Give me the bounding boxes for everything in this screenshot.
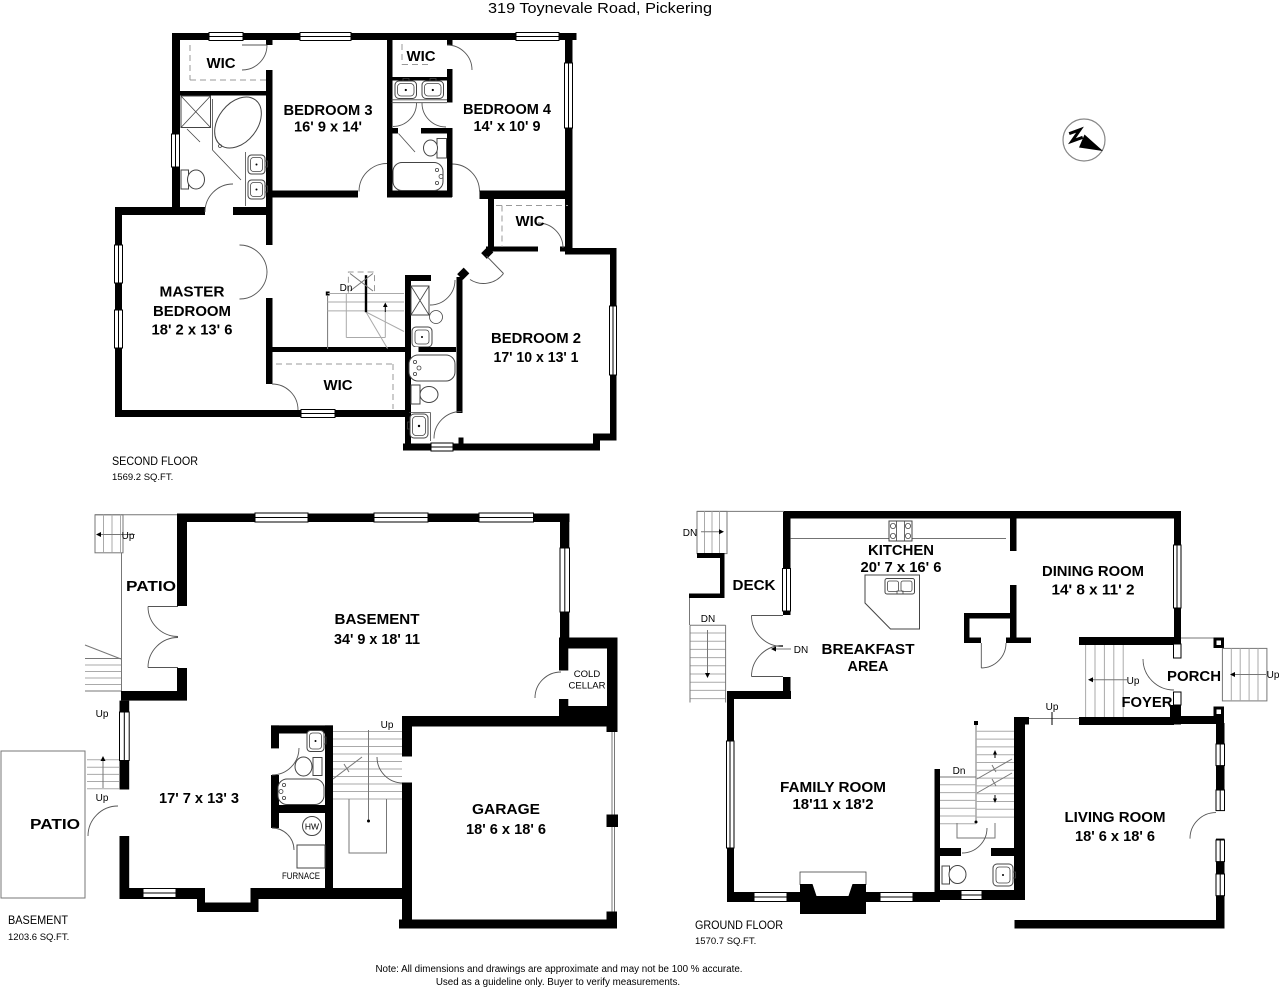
svg-text:17' 7 x 13' 3: 17' 7 x 13' 3: [159, 791, 239, 807]
svg-text:Up: Up: [96, 793, 109, 804]
svg-text:18' 6 x 18' 6: 18' 6 x 18' 6: [466, 822, 546, 838]
svg-text:BASEMENT: BASEMENT: [335, 612, 420, 628]
svg-text:BEDROOM 3: BEDROOM 3: [284, 103, 373, 119]
svg-text:1570.7 SQ.FT.: 1570.7 SQ.FT.: [695, 936, 756, 947]
svg-text:BASEMENT: BASEMENT: [8, 915, 68, 927]
svg-text:Note: All dimensions and drawi: Note: All dimensions and drawings are ap…: [375, 964, 742, 975]
svg-text:BEDROOM: BEDROOM: [153, 304, 231, 320]
svg-text:18' 2 x 13' 6: 18' 2 x 13' 6: [152, 323, 233, 339]
svg-text:18'11 x 18'2: 18'11 x 18'2: [793, 797, 874, 813]
svg-text:BEDROOM 4: BEDROOM 4: [463, 102, 551, 118]
svg-text:Up: Up: [122, 531, 135, 542]
svg-text:MASTER: MASTER: [160, 285, 226, 301]
svg-text:FOYER: FOYER: [1122, 695, 1174, 711]
svg-text:AREA: AREA: [848, 659, 890, 675]
svg-text:WIC: WIC: [324, 378, 354, 394]
svg-text:14' 8 x 11' 2: 14' 8 x 11' 2: [1052, 583, 1135, 599]
svg-text:Up: Up: [1046, 702, 1059, 713]
svg-text:1569.2 SQ.FT.: 1569.2 SQ.FT.: [112, 472, 173, 483]
svg-text:WIC: WIC: [407, 49, 437, 65]
svg-text:14' x 10' 9: 14' x 10' 9: [474, 119, 541, 135]
svg-text:FAMILY ROOM: FAMILY ROOM: [780, 780, 886, 796]
svg-text:CELLAR: CELLAR: [569, 681, 606, 692]
svg-text:LIVING ROOM: LIVING ROOM: [1065, 810, 1166, 826]
svg-text:PATIO: PATIO: [30, 817, 80, 833]
svg-text:DN: DN: [683, 528, 697, 539]
svg-text:319 Toynevale Road, Pickering: 319 Toynevale Road, Pickering: [488, 0, 712, 17]
svg-text:DN: DN: [701, 614, 715, 625]
svg-text:BEDROOM 2: BEDROOM 2: [491, 331, 581, 347]
svg-text:DECK: DECK: [733, 578, 777, 594]
svg-text:COLD: COLD: [574, 669, 601, 680]
svg-text:DN: DN: [794, 645, 808, 656]
svg-text:GARAGE: GARAGE: [472, 802, 540, 818]
svg-text:18' 6 x 18' 6: 18' 6 x 18' 6: [1075, 829, 1155, 845]
svg-text:KITCHEN: KITCHEN: [868, 543, 934, 559]
svg-text:16' 9 x 14': 16' 9 x 14': [294, 120, 362, 136]
svg-text:Dn: Dn: [953, 766, 966, 777]
svg-text:34' 9 x 18' 11: 34' 9 x 18' 11: [334, 632, 420, 648]
svg-text:WIC: WIC: [516, 214, 546, 230]
svg-text:SECOND FLOOR: SECOND FLOOR: [112, 456, 198, 468]
svg-text:Used as a guideline only. Buye: Used as a guideline only. Buyer to verif…: [436, 977, 680, 987]
svg-text:PORCH: PORCH: [1167, 669, 1221, 685]
svg-text:1203.6 SQ.FT.: 1203.6 SQ.FT.: [8, 932, 69, 943]
svg-text:GROUND FLOOR: GROUND FLOOR: [695, 920, 783, 932]
svg-text:HW: HW: [305, 822, 319, 832]
svg-text:DINING ROOM: DINING ROOM: [1042, 564, 1144, 580]
svg-text:Up: Up: [381, 720, 394, 731]
svg-text:Up: Up: [1267, 670, 1280, 681]
svg-text:17' 10 x 13' 1: 17' 10 x 13' 1: [494, 350, 579, 366]
svg-text:FURNACE: FURNACE: [282, 871, 320, 882]
svg-text:Up: Up: [96, 709, 109, 720]
svg-text:Dn: Dn: [340, 283, 353, 294]
svg-text:WIC: WIC: [207, 56, 237, 72]
svg-text:20' 7 x 16' 6: 20' 7 x 16' 6: [861, 560, 942, 576]
svg-text:BREAKFAST: BREAKFAST: [822, 642, 915, 658]
svg-text:Up: Up: [1127, 676, 1140, 687]
svg-text:PATIO: PATIO: [126, 579, 176, 595]
